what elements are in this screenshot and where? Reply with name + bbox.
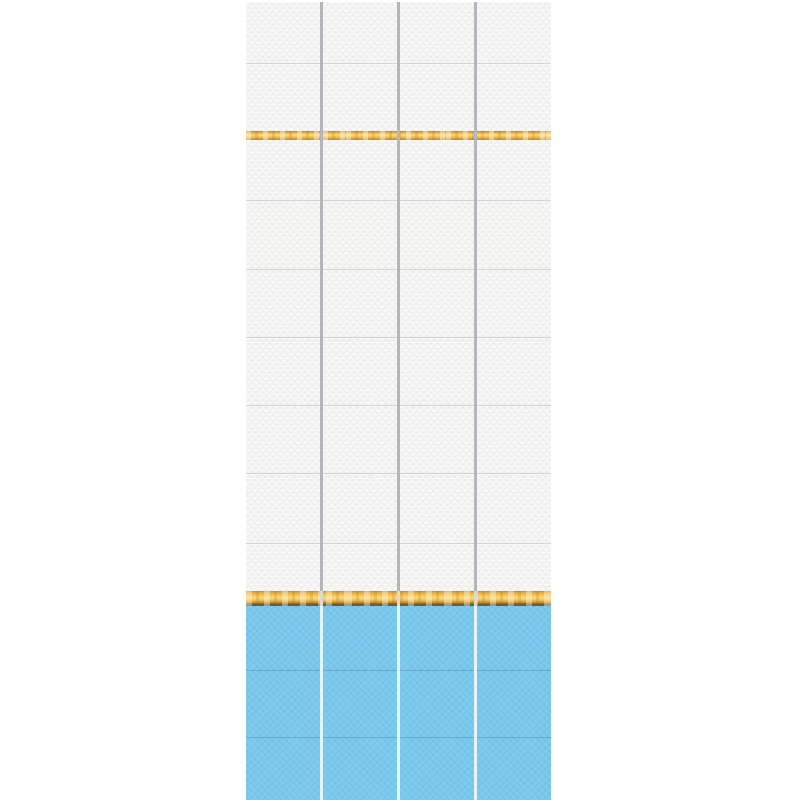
product-photo-canvas [0,0,800,800]
white-tile-band [477,405,551,473]
white-tile-band [323,63,397,131]
white-tile-band [246,63,320,131]
pvc-panel-strip [400,2,474,800]
white-tile-band [477,2,551,63]
gold-trim-stripe [323,131,397,140]
gold-trim-stripe-major [323,591,397,606]
gold-trim-stripe [477,131,551,140]
blue-tile-band [477,606,551,670]
white-tile-band [323,269,397,337]
gold-trim-stripe-major [400,591,474,606]
pvc-panel-strip [477,2,551,800]
white-tile-band [400,2,474,63]
white-tile-band [400,200,474,269]
blue-tile-band [246,737,320,800]
white-tile-band [477,337,551,405]
blue-tile-band [477,670,551,737]
blue-tile-band [400,670,474,737]
white-tile-band [400,63,474,131]
white-tile-band [246,473,320,543]
white-tile-band [477,63,551,131]
white-tile-band [477,200,551,269]
gold-trim-stripe [246,131,320,140]
pvc-panel-strip [246,2,320,800]
white-tile-band [246,337,320,405]
white-tile-band [400,337,474,405]
white-tile-band [323,200,397,269]
pvc-panel-strip [323,2,397,800]
white-tile-band [400,473,474,543]
blue-tile-band [477,737,551,800]
white-tile-band [246,2,320,63]
white-tile-band [477,140,551,200]
gold-trim-stripe-major [477,591,551,606]
blue-tile-band [246,606,320,670]
blue-tile-band [323,737,397,800]
blue-tile-band [400,606,474,670]
white-tile-band [477,473,551,543]
white-tile-band [246,269,320,337]
panel-collage [246,2,551,800]
white-tile-band [477,269,551,337]
white-tile-band [400,405,474,473]
white-tile-band [246,200,320,269]
white-tile-band [246,405,320,473]
gold-trim-stripe [400,131,474,140]
blue-tile-band [323,606,397,670]
blue-tile-band [246,670,320,737]
blue-tile-band [400,737,474,800]
white-tile-band [400,140,474,200]
white-tile-band [400,269,474,337]
white-tile-band [323,405,397,473]
white-tile-band [323,543,397,591]
white-tile-band [323,337,397,405]
white-tile-band [323,140,397,200]
white-tile-band [323,473,397,543]
blue-tile-band [323,670,397,737]
white-tile-band [246,543,320,591]
white-tile-band [400,543,474,591]
white-tile-band [246,140,320,200]
gold-trim-stripe-major [246,591,320,606]
white-tile-band [323,2,397,63]
white-tile-band [477,543,551,591]
